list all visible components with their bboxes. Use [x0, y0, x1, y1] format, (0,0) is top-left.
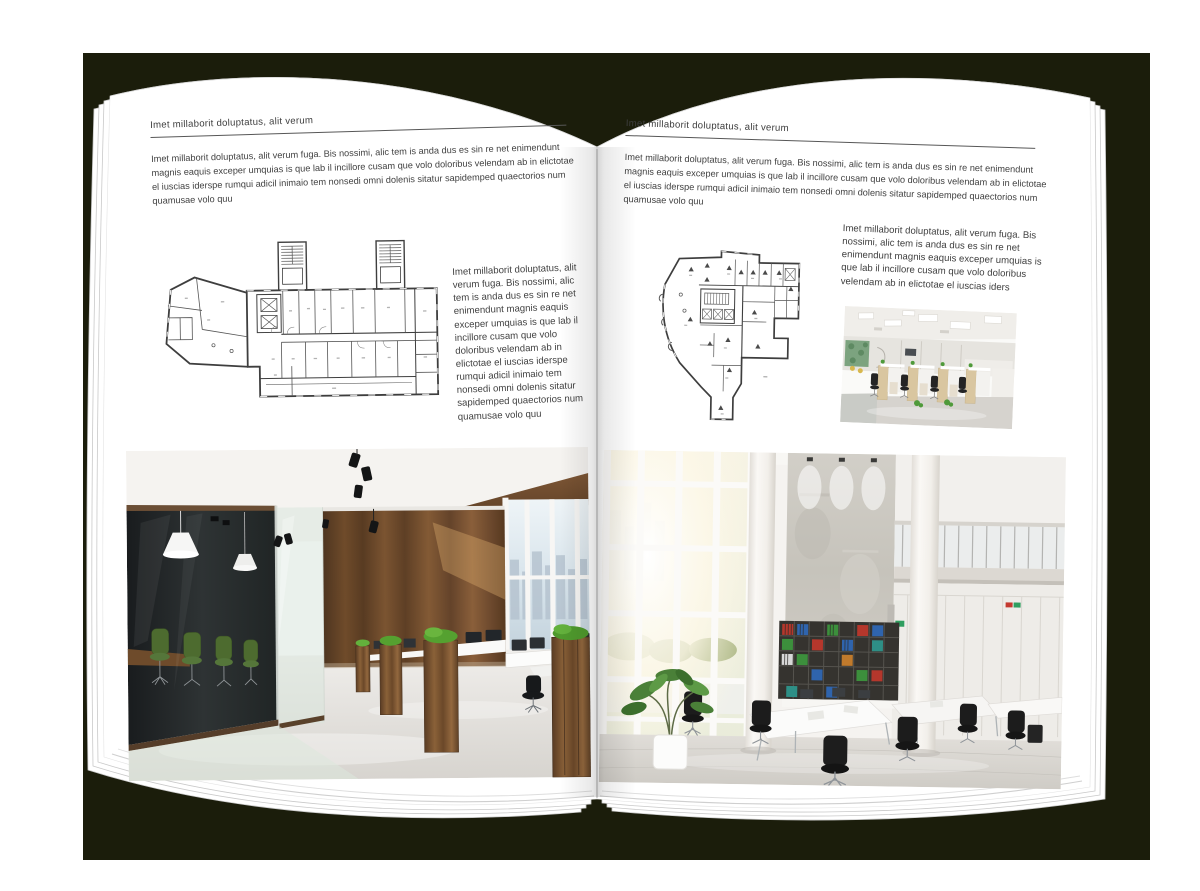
left-office-photo: [126, 447, 591, 781]
left-page-header-block: Imet millaborit doluptatus, alit verum I…: [150, 107, 580, 208]
left-side-text: Imet millaborit doluptatus, alit verum f…: [452, 261, 584, 423]
right-side-text: Imet millaborit doluptatus, alit verum f…: [840, 222, 1056, 296]
left-floor-plan-drawing: [160, 236, 442, 408]
right-small-office-photo: [840, 306, 1017, 429]
right-page-header-block: Imet millaborit doluptatus, alit verum I…: [623, 118, 1054, 220]
right-floor-plan-drawing: [645, 224, 808, 423]
loft-office-illustration: [126, 447, 591, 781]
magazine-spread-mockup: Imet millaborit doluptatus, alit verum I…: [0, 0, 1200, 891]
atrium-office-illustration: [599, 450, 1066, 789]
right-office-photo: [599, 450, 1066, 789]
open-plan-office-illustration: [840, 306, 1017, 429]
